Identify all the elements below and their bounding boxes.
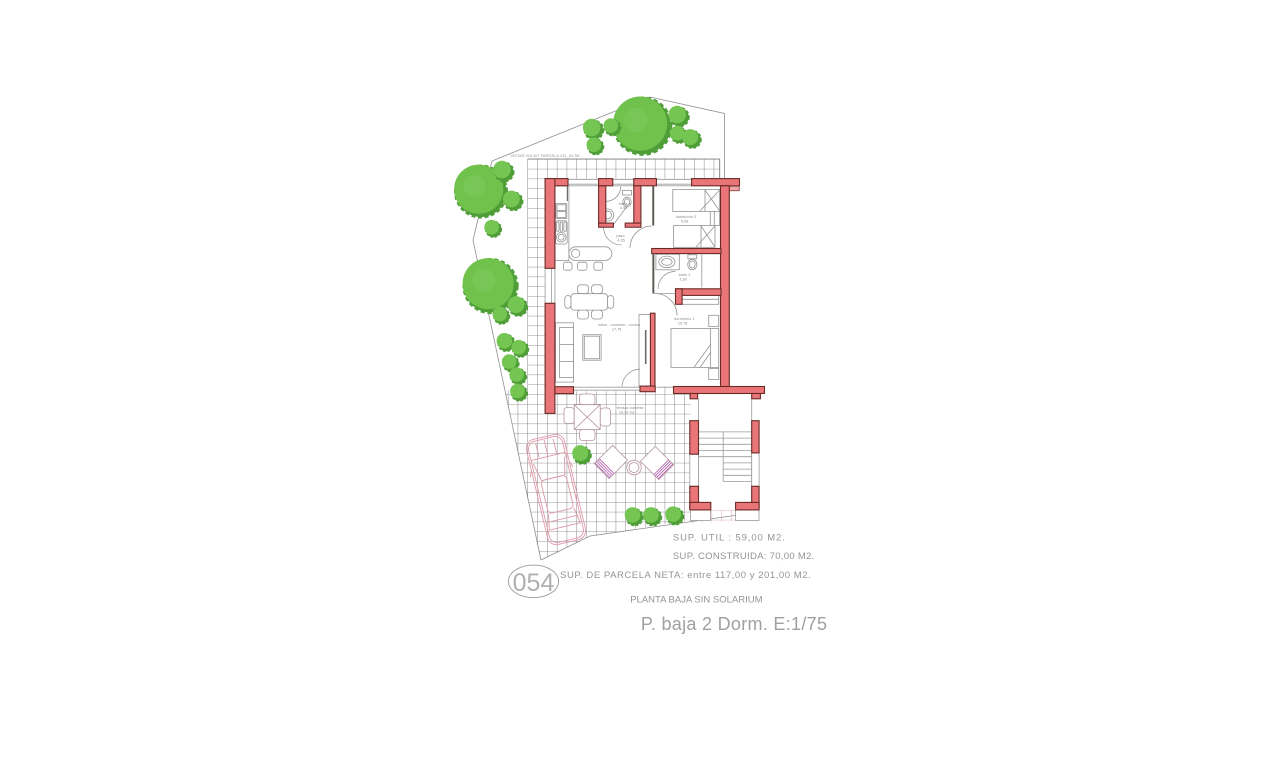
svg-text:terraza cubierta: terraza cubierta	[617, 406, 644, 410]
svg-text:10,00 m2: 10,00 m2	[619, 411, 635, 415]
svg-text:4,65: 4,65	[618, 239, 625, 243]
svg-text:salón - comedor - cocina: salón - comedor - cocina	[598, 323, 640, 327]
svg-text:paso: paso	[617, 234, 625, 238]
svg-text:17,75: 17,75	[612, 328, 622, 332]
svg-text:4,50: 4,50	[620, 206, 627, 210]
svg-text:SUP. CONSTRUIDA: 70,00 M2.: SUP. CONSTRUIDA: 70,00 M2.	[673, 551, 815, 562]
svg-text:3,60: 3,60	[680, 278, 687, 282]
svg-text:baño 1: baño 1	[679, 273, 691, 277]
svg-text:10,75: 10,75	[678, 322, 688, 326]
svg-text:dormitorio 1: dormitorio 1	[674, 317, 694, 321]
svg-text:P. baja 2 Dorm. E:1/75: P. baja 2 Dorm. E:1/75	[641, 614, 827, 634]
svg-text:dormitorio 2: dormitorio 2	[676, 215, 696, 219]
svg-text:SUP. UTIL : 59,00 M2.: SUP. UTIL : 59,00 M2.	[673, 533, 786, 544]
svg-text:054: 054	[513, 569, 555, 597]
svg-text:9,08: 9,08	[681, 220, 688, 224]
svg-text:VISTAS VIA 307 PARCELA 131_0: VISTAS VIA 307 PARCELA 131_04 SE	[511, 153, 581, 158]
svg-text:SUP. DE PARCELA NETA: entre 11: SUP. DE PARCELA NETA: entre 117,00 y 201…	[560, 570, 811, 581]
svg-text:PLANTA BAJA SIN SOLARIUM: PLANTA BAJA SIN SOLARIUM	[630, 595, 762, 606]
